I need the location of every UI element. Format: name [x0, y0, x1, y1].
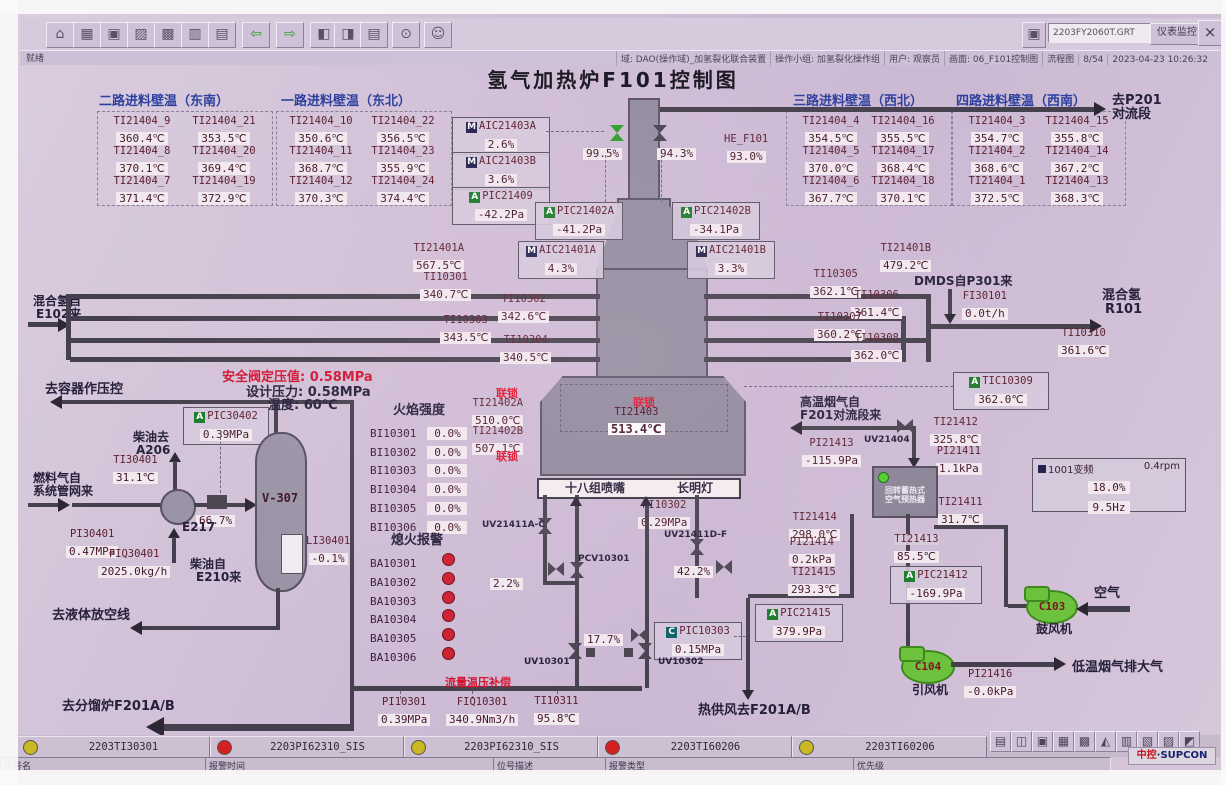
alarm-dot — [605, 740, 620, 755]
signal-line — [744, 386, 953, 387]
pipe — [575, 495, 579, 688]
sv-set-label: 安全阀定压值: 0.58MPa — [222, 371, 373, 384]
auto-badge: A — [544, 207, 555, 218]
flame-row[interactable]: BI10303 0.0% — [370, 459, 467, 478]
instrument-aic21401a[interactable]: MAIC21401A 4.3% — [518, 241, 604, 279]
burner-box: 十八组喷嘴 长明灯 — [537, 478, 741, 499]
wall-temp-cell[interactable]: TI21404_11368.7℃ — [281, 145, 361, 176]
instrument-he-f101[interactable]: HE_F101 93.0% — [724, 134, 768, 164]
arrowhead — [570, 496, 582, 506]
wall-temp-group: TI21404_9360.4℃TI21404_21353.5℃TI21404_8… — [97, 111, 273, 206]
c103-blower[interactable]: C103 — [1026, 590, 1078, 624]
footer-field[interactable]: 报警时间 — [205, 757, 499, 776]
arrowhead — [944, 314, 956, 324]
supcon-logo: 中控·SUPCON — [1128, 747, 1216, 765]
wall-temp-cell[interactable]: TI21404_14367.2℃ — [1037, 145, 1117, 176]
auto-badge: A — [767, 609, 778, 620]
pcv10301-valve-icon[interactable] — [570, 562, 584, 578]
hot-air-label: 热供风去F201A/B — [698, 704, 811, 717]
forward-icon[interactable]: ⇨ — [276, 22, 304, 48]
instrument-ti21401a[interactable]: TI21401A567.5℃ — [413, 243, 464, 273]
wall-temp-cell[interactable]: TI21404_9360.4℃ — [102, 115, 182, 146]
control-valve-icon[interactable] — [716, 560, 732, 574]
alarm-entry[interactable]: 2203PI62310_SIS — [210, 736, 404, 758]
instrument-pic30402[interactable]: APIC30402 0.39MPa — [183, 407, 269, 445]
status-indicator — [878, 472, 889, 483]
flameout-row[interactable]: BA10302 — [370, 571, 416, 590]
blower-label: 鼓风机 — [1036, 623, 1072, 636]
wall-temp-group: TI21404_10350.6℃TI21404_22356.5℃TI21404_… — [276, 111, 452, 206]
alarm-dot — [23, 740, 38, 755]
flame-row[interactable]: BI10302 0.0% — [370, 441, 467, 460]
cascade-badge: C — [666, 627, 677, 638]
wall-temp-cell[interactable]: TI21404_3354.7℃ — [957, 115, 1037, 146]
page-next-icon[interactable]: ◨ — [334, 22, 362, 48]
alarm-dot — [411, 740, 426, 755]
pipe — [28, 322, 62, 327]
instrument-pic21415[interactable]: APIC21415 379.9Pa — [755, 604, 843, 642]
uv10302-valve-icon[interactable] — [638, 643, 652, 659]
wall-temp-cell[interactable]: TI21404_12370.3℃ — [281, 175, 361, 206]
home-icon[interactable]: ⌂ — [46, 22, 74, 48]
flameout-indicator — [442, 609, 455, 622]
flameout-row[interactable]: BA10301 — [370, 552, 416, 571]
nozzle-label: 十八组喷嘴 — [565, 482, 625, 495]
arrowhead — [1076, 602, 1088, 616]
to-p201-label: 去P201 — [1112, 94, 1162, 107]
v307-label: V-307 — [262, 492, 298, 505]
user-icon[interactable]: ☺ — [424, 22, 452, 48]
arrowhead — [130, 621, 142, 635]
to-frac-label: 去分馏炉F201A/B — [62, 700, 175, 713]
signal-line — [220, 437, 221, 493]
wall-temp-cell[interactable]: TI21404_1372.5℃ — [957, 175, 1037, 206]
e217-label: E217 — [182, 521, 215, 534]
flameout-row[interactable]: BA10304 — [370, 608, 416, 627]
pipe — [1088, 606, 1130, 612]
instrument-pi21411[interactable]: PI214111.1kPa — [936, 446, 982, 476]
wall-temp-cell[interactable]: TI21404_16355.5℃ — [863, 115, 943, 146]
photo-edge — [0, 0, 18, 785]
wall-temp-cell[interactable]: TI21404_5370.0℃ — [791, 145, 871, 176]
arrowhead — [640, 496, 652, 506]
back-icon[interactable]: ⇦ — [242, 22, 270, 48]
instrument-pi10301[interactable]: PI103010.39MPa — [378, 697, 430, 727]
close-icon[interactable]: × — [1198, 20, 1222, 46]
calculator-icon[interactable]: ▩ — [1074, 731, 1095, 752]
flame-title: 火焰强度 — [393, 404, 445, 417]
low-flue-label: 低温烟气排大气 — [1072, 661, 1163, 674]
photo-edge — [0, 0, 1226, 14]
instrument-ti21402a[interactable]: TI21402A510.0℃ — [472, 398, 523, 428]
flameout-indicator — [442, 572, 455, 585]
group-title-2: 二路进料壁温（东南） — [99, 95, 229, 108]
group-display-icon[interactable]: ▩ — [154, 22, 182, 48]
instrument-ti21412[interactable]: TI21412325.8℃ — [930, 417, 981, 447]
instrument-aic21403a[interactable]: MAIC21403A 2.6% — [452, 117, 550, 155]
arrowhead — [742, 690, 754, 700]
auto-badge: A — [469, 192, 480, 203]
wall-temp-cell[interactable]: TI21404_7371.4℃ — [102, 175, 182, 206]
instrument-ti21415[interactable]: TI21415293.3℃ — [788, 567, 839, 597]
uv21411ac-label: UV21411A-C — [482, 519, 545, 532]
alarm-entry[interactable]: 2203TI60206 — [598, 736, 792, 758]
instrument-pi21416[interactable]: PI21416-0.0kPa — [964, 669, 1016, 699]
pipe — [66, 294, 71, 360]
uv21411df-label: UV21411D-F — [664, 529, 727, 542]
trend-icon[interactable]: ▨ — [127, 22, 155, 48]
design-temp-label: 温度: 60℃ — [268, 399, 338, 412]
signal-line — [605, 155, 606, 202]
fuel-from-label2: 系统管网来 — [33, 485, 93, 498]
footer-field[interactable]: 优先级 — [853, 757, 1111, 776]
alarm-dot — [799, 740, 814, 755]
pipe — [276, 588, 280, 630]
pipe — [645, 505, 649, 688]
mode-badge: M — [696, 246, 707, 257]
flameout-indicator — [442, 647, 455, 660]
flame-row[interactable]: BI10305 0.0% — [370, 497, 467, 516]
flameout-title: 熄火报警 — [391, 534, 443, 547]
pipe — [746, 598, 750, 692]
wall-temp-cell[interactable]: TI21404_8370.1℃ — [102, 145, 182, 176]
alarm-entry[interactable]: 2203PI62310_SIS — [404, 736, 598, 758]
control-valve-icon[interactable] — [548, 562, 564, 576]
mix-h2-out-label2: R101 — [1105, 303, 1142, 316]
instrument-fiq30401[interactable]: FIQ304012025.0kg/h — [98, 549, 170, 579]
graphics-icon[interactable]: ▦ — [73, 22, 101, 48]
auto-badge: A — [681, 207, 692, 218]
mode-badge: M — [466, 122, 477, 133]
book-icon[interactable]: ▤ — [360, 22, 388, 48]
instrument-v995[interactable]: 99.5% — [583, 142, 622, 161]
air-preheater[interactable]: 回转蓄热式 空气预热器 — [872, 466, 938, 518]
wall-temp-cell[interactable]: TI21404_20369.4℃ — [184, 145, 264, 176]
instrument-li30401[interactable]: LI30401-0.1% — [306, 536, 350, 566]
alarm-entry[interactable]: 2203TI60206 — [792, 736, 987, 758]
instrument-aic21403b[interactable]: MAIC21403B 3.6% — [452, 152, 550, 190]
flame-row[interactable]: BI10306 0.0% — [370, 516, 467, 535]
instrument-pic21402a[interactable]: APIC21402A -41.2Pa — [535, 202, 623, 240]
pipe — [1004, 525, 1008, 607]
wall-temp-cell[interactable]: TI21404_6367.7℃ — [791, 175, 871, 206]
hot-flue-label2: F201对流段来 — [800, 409, 881, 422]
instrument-ti10308[interactable]: TI10308362.0℃ — [851, 333, 902, 363]
instrument-tic10309[interactable]: ATIC10309 362.0℃ — [953, 372, 1049, 410]
instrument-ti10303[interactable]: TI10303343.5℃ — [440, 315, 491, 345]
flowsheet-file-field[interactable]: 2203FY2060T.GRT — [1048, 23, 1154, 43]
flameout-indicator — [442, 553, 455, 566]
pipe — [543, 581, 577, 585]
search-icon[interactable]: ⊙ — [392, 22, 420, 48]
instrument-v422[interactable]: 42.2% — [674, 560, 713, 579]
instrument-pi21414[interactable]: PI214140.2kPa — [789, 537, 835, 567]
air-label: 空气 — [1094, 587, 1120, 600]
pipe — [172, 537, 176, 563]
uv10301-valve-icon[interactable] — [568, 643, 582, 659]
instrument-v943[interactable]: 94.3% — [657, 142, 696, 161]
instrument-ti21403[interactable]: TI21403 513.4℃ — [608, 407, 665, 437]
wall-temp-cell[interactable]: TI21404_21353.5℃ — [184, 115, 264, 146]
interlock-label: 联锁 — [496, 451, 518, 462]
diesel-from-label2: E210来 — [196, 571, 241, 584]
flameout-row[interactable]: BA10306 — [370, 646, 416, 665]
instrument-ti21401b[interactable]: TI21401B479.2℃ — [880, 243, 931, 273]
pcv10301-label: PCV10301 — [578, 553, 629, 566]
vfd-panel[interactable]: 1001变频 0.4rpm 18.0% 9.5Hz — [1032, 458, 1186, 512]
auto-badge: A — [969, 377, 980, 388]
wall-temp-cell[interactable]: TI21404_2368.6℃ — [957, 145, 1037, 176]
pilot-label: 长明灯 — [677, 482, 713, 495]
status-bar: 就绪 域: DAO(操作域)_加氢裂化联合装置操作小组: 加氢裂化操作组用户: … — [20, 50, 1220, 65]
arrowhead — [1094, 102, 1106, 116]
alarm-dot — [217, 740, 232, 755]
wall-temp-group: TI21404_3354.7℃TI21404_15355.8℃TI21404_2… — [952, 111, 1126, 206]
footer-field[interactable]: 报警类型 — [605, 757, 859, 776]
pipe — [142, 626, 280, 630]
window-icon[interactable]: ▣ — [100, 22, 128, 48]
instrument-ti10301[interactable]: TI10301340.7℃ — [420, 272, 471, 302]
furnace-column — [596, 268, 708, 380]
flame-row[interactable]: BI10304 0.0% — [370, 478, 467, 497]
compensation-label: 流量温压补偿 — [445, 676, 511, 689]
wall-temp-cell[interactable]: TI21404_13368.3℃ — [1037, 175, 1117, 206]
arrowhead — [50, 395, 62, 409]
instrument-ti10311[interactable]: TI1031195.8℃ — [534, 696, 579, 726]
unlock-icon[interactable]: ◫ — [1011, 731, 1032, 752]
arrowhead — [1054, 657, 1066, 671]
footer-field[interactable]: 位号名 — [0, 757, 211, 776]
dcs-screen: ⌂▦▣▨▩▥▤⇦⇨◧◨▤⊙☺ ▣ 2203FY2060T.GRT 仪表监控 ▾ … — [0, 0, 1226, 785]
pipe — [543, 495, 547, 585]
wall-temp-cell[interactable]: TI21404_19372.9℃ — [184, 175, 264, 206]
to-liquid-label: 去液体放空线 — [52, 609, 130, 622]
flameout-row[interactable]: BA10305 — [370, 627, 416, 646]
flame-row[interactable]: BI10301 0.0% — [370, 422, 467, 441]
flameout-indicator — [442, 628, 455, 641]
mode-badge: M — [466, 157, 477, 168]
instrument-aic21401b[interactable]: MAIC21401B 3.3% — [687, 241, 775, 279]
pipe — [850, 514, 854, 598]
printer-icon[interactable]: ▤ — [990, 731, 1011, 752]
valve-667-icon[interactable] — [207, 495, 227, 509]
instrument-pic10303[interactable]: CPIC10303 0.15MPa — [654, 622, 742, 660]
wall-temp-cell[interactable]: TI21404_15355.8℃ — [1037, 115, 1117, 146]
mix-h2-out-label: 混合氢 — [1102, 289, 1141, 302]
control-valve-icon[interactable] — [631, 628, 647, 642]
signal-line — [661, 155, 662, 202]
capture-icon[interactable]: ▣ — [1022, 22, 1046, 48]
mode-badge: M — [526, 246, 537, 257]
report-icon[interactable]: ▤ — [208, 22, 236, 48]
pipe — [630, 107, 1096, 112]
pipe — [28, 503, 60, 507]
instrument-fi30101[interactable]: FI301010.0t/h — [962, 291, 1008, 321]
valve-actuator — [624, 648, 633, 657]
dmds-label: DMDS自P301来 — [914, 275, 1012, 288]
pipe — [934, 525, 1008, 529]
uv21404-label: UV21404 — [864, 434, 910, 447]
uv21404-valve-icon[interactable] — [897, 419, 913, 433]
damper-valve-icon[interactable] — [653, 125, 667, 141]
wall-temp-cell[interactable]: TI21404_4354.5℃ — [791, 115, 871, 146]
arrowhead — [146, 717, 164, 737]
alarm-bell-icon[interactable]: ◭ — [1095, 731, 1116, 752]
wall-temp-cell[interactable]: TI21404_18370.1℃ — [863, 175, 943, 206]
uv10301-label: UV10301 — [524, 656, 570, 669]
flameout-indicator — [442, 591, 455, 604]
pipe — [951, 662, 1057, 667]
pipe — [912, 426, 916, 460]
wall-temp-group: TI21404_4354.5℃TI21404_16355.5℃TI21404_5… — [786, 111, 952, 206]
instrument-v22[interactable]: 2.2% — [490, 572, 523, 591]
pipe — [948, 289, 952, 315]
group-title-1: 一路进料壁温（东北） — [281, 95, 411, 108]
instrument-monitor-button[interactable]: 仪表监控 — [1150, 23, 1204, 45]
display-icon[interactable]: ▣ — [1032, 731, 1053, 752]
id-fan-label: 引风机 — [912, 684, 948, 697]
faceplate-icon[interactable]: ▥ — [181, 22, 209, 48]
damper-valve-icon[interactable] — [610, 125, 624, 141]
instrument-ti30401[interactable]: TI3040131.1℃ — [113, 455, 158, 485]
instrument-ti10302[interactable]: TI10302342.6℃ — [498, 294, 549, 324]
pipe — [350, 400, 354, 730]
wall-temp-cell[interactable]: TI21404_17368.4℃ — [863, 145, 943, 176]
instrument-pi21413[interactable]: PI21413-115.9Pa — [802, 438, 861, 468]
furnace-stack — [628, 98, 660, 204]
arrowhead — [58, 498, 70, 512]
wall-temp-cell[interactable]: TI21404_23355.9℃ — [363, 145, 443, 176]
footer-field[interactable]: 位号描述 — [493, 757, 611, 776]
instrument-ti10304[interactable]: TI10304340.5℃ — [500, 335, 551, 365]
auto-badge: A — [194, 412, 205, 423]
wall-temp-cell[interactable]: TI21404_22356.5℃ — [363, 115, 443, 146]
valve-actuator — [586, 648, 595, 657]
uv10302-label: UV10302 — [658, 656, 704, 669]
auto-badge: A — [904, 571, 915, 582]
signal-line — [546, 131, 604, 132]
workstation-icon[interactable]: ▦ — [1053, 731, 1074, 752]
wall-temp-cell[interactable]: TI21404_24374.4℃ — [363, 175, 443, 206]
instrument-pic21412[interactable]: APIC21412 -169.9Pa — [890, 566, 982, 604]
wall-temp-cell[interactable]: TI21404_10350.6℃ — [281, 115, 361, 146]
vfd-indicator-icon — [1038, 465, 1046, 473]
pipe — [162, 724, 354, 731]
to-p201-label2: 对流段 — [1112, 108, 1151, 121]
instrument-fiq10301[interactable]: FIQ10301340.9Nm3/h — [446, 697, 518, 727]
alarm-entry[interactable]: 2203TI30301 — [16, 736, 210, 758]
flameout-row[interactable]: BA10303 — [370, 590, 416, 609]
page-title: 氢气加热炉F101控制图 — [0, 64, 1226, 93]
instrument-pic21402b[interactable]: APIC21402B -34.1Pa — [672, 202, 760, 240]
instrument-ti21411[interactable]: TI2141131.7℃ — [938, 497, 983, 527]
pipe — [72, 503, 162, 507]
c104-id-fan[interactable]: C104 — [901, 650, 955, 684]
instrument-ti10310[interactable]: TI10310361.6℃ — [1058, 328, 1109, 358]
instrument-v177[interactable]: 17.7% — [584, 628, 623, 647]
level-gauge — [281, 534, 303, 574]
photo-edge — [1221, 0, 1226, 785]
arrowhead — [790, 421, 802, 435]
instrument-ti21413[interactable]: TI21413 85.5℃ — [894, 534, 939, 564]
